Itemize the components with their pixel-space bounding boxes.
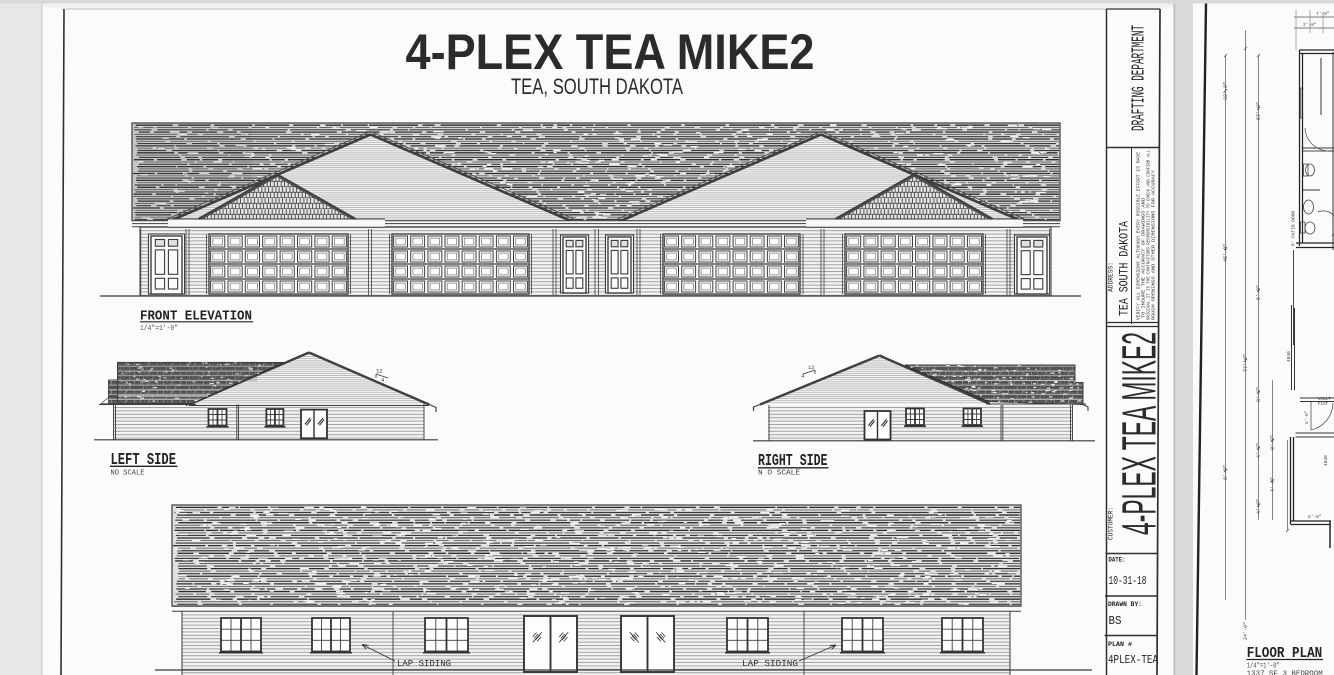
- svg-text:8'-0": 8'-0": [1256, 387, 1262, 402]
- svg-text:8' PATIO DOOR: 8' PATIO DOOR: [1291, 211, 1297, 246]
- svg-text:LAP SIDING: LAP SIDING: [397, 658, 451, 669]
- svg-text:ADDRESS:: ADDRESS:: [1108, 262, 1115, 292]
- svg-text:4-PLEX TEA MIKE2: 4-PLEX TEA MIKE2: [406, 24, 815, 80]
- svg-text:4'-0": 4'-0": [1256, 499, 1262, 514]
- svg-text:77'-0": 77'-0": [1243, 354, 1249, 372]
- svg-text:12: 12: [376, 368, 383, 375]
- svg-text:9'-0": 9'-0": [1223, 465, 1229, 480]
- svg-text:5'-0": 5'-0": [1308, 514, 1322, 520]
- svg-text:22'-0": 22'-0": [1223, 82, 1229, 100]
- svg-text:2'-8": 2'-8": [1303, 22, 1317, 28]
- svg-text:5'-0": 5'-0": [1256, 285, 1262, 300]
- svg-text:4-PLEX TEA MIKE2: 4-PLEX TEA MIKE2: [1114, 332, 1167, 535]
- svg-text:ROUGH OPENINGS AND OTHER DIMEN: ROUGH OPENINGS AND OTHER DIMENSIONS FOR …: [1152, 170, 1157, 320]
- svg-text:LAP SIDING: LAP SIDING: [742, 658, 798, 669]
- svg-text:67'-0": 67'-0": [1256, 102, 1262, 120]
- svg-text:TEA SOUTH DAKOTA: TEA SOUTH DAKOTA: [1118, 221, 1132, 316]
- svg-text:45'-0": 45'-0": [1223, 244, 1229, 262]
- svg-text:12: 12: [808, 364, 815, 371]
- svg-text:8'-8": 8'-8": [1270, 435, 1276, 450]
- svg-text:1337 SF 3 BEDROOM: 1337 SF 3 BEDROOM: [1247, 670, 1323, 675]
- svg-text:TEA, SOUTH DAKOTA: TEA, SOUTH DAKOTA: [511, 74, 683, 99]
- svg-text:DRAWN BY:: DRAWN BY:: [1108, 601, 1142, 608]
- svg-text:PLAN #: PLAN #: [1108, 641, 1132, 648]
- svg-text:4'-0": 4'-0": [1256, 443, 1262, 458]
- svg-text:DRAFTING DEPARTMENT: DRAFTING DEPARTMENT: [1130, 25, 1150, 131]
- svg-text:5'-0": 5'-0": [1304, 410, 1310, 424]
- svg-text:24'-0": 24'-0": [1243, 622, 1249, 640]
- svg-text:BS: BS: [1109, 614, 1122, 628]
- svg-text:FLAT: FLAT: [1318, 403, 1329, 407]
- svg-text:4040: 4040: [1323, 455, 1329, 466]
- svg-text:1/4"=1'-0": 1/4"=1'-0": [1247, 663, 1280, 671]
- svg-text:N O SCALE: N O SCALE: [758, 469, 801, 477]
- svg-text:4PLEX-TEA: 4PLEX-TEA: [1108, 653, 1159, 667]
- svg-text:10-31-18: 10-31-18: [1109, 574, 1147, 588]
- svg-text:NO SCALE: NO SCALE: [111, 470, 145, 478]
- svg-text:7'-8": 7'-8": [1316, 11, 1330, 17]
- svg-text:DATE:: DATE:: [1109, 557, 1126, 564]
- svg-text:1/4"=1'-0": 1/4"=1'-0": [140, 325, 178, 333]
- svg-text:4'-0": 4'-0": [1270, 477, 1276, 492]
